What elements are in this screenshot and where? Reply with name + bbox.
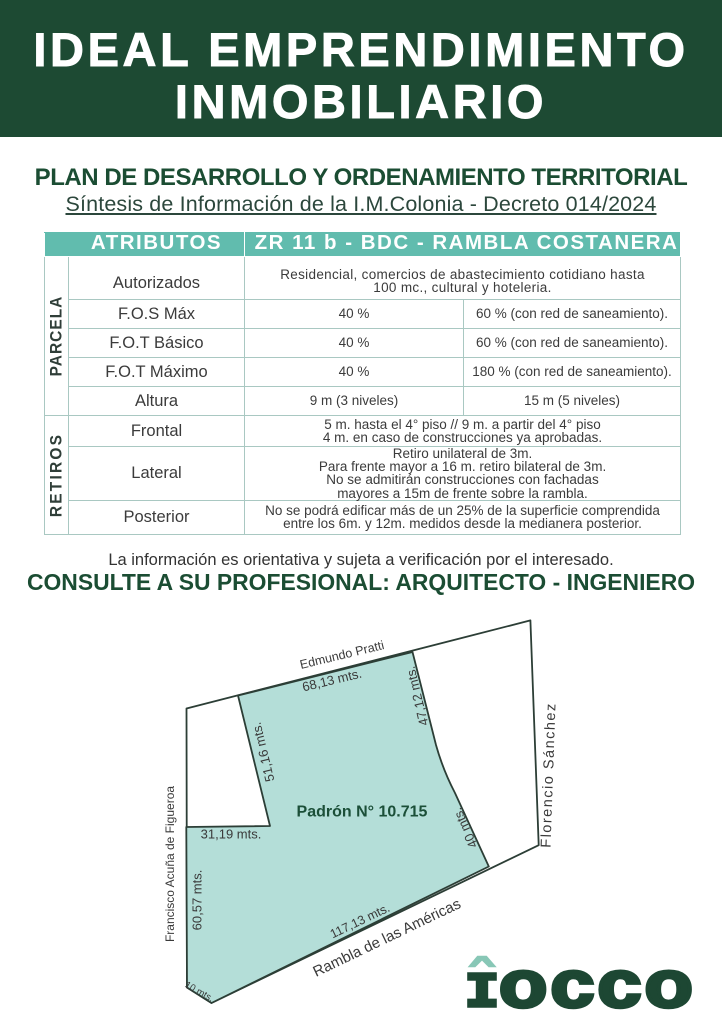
svg-text:Padrón N° 10.715: Padrón N° 10.715 bbox=[297, 804, 428, 821]
svg-text:Florencio Sánchez: Florencio Sánchez bbox=[538, 702, 559, 848]
svg-text:Francisco Acuña de Figueroa: Francisco Acuña de Figueroa bbox=[163, 786, 177, 942]
svg-text:60,57 mts.: 60,57 mts. bbox=[190, 870, 205, 931]
svg-text:31,19 mts.: 31,19 mts. bbox=[201, 827, 262, 842]
